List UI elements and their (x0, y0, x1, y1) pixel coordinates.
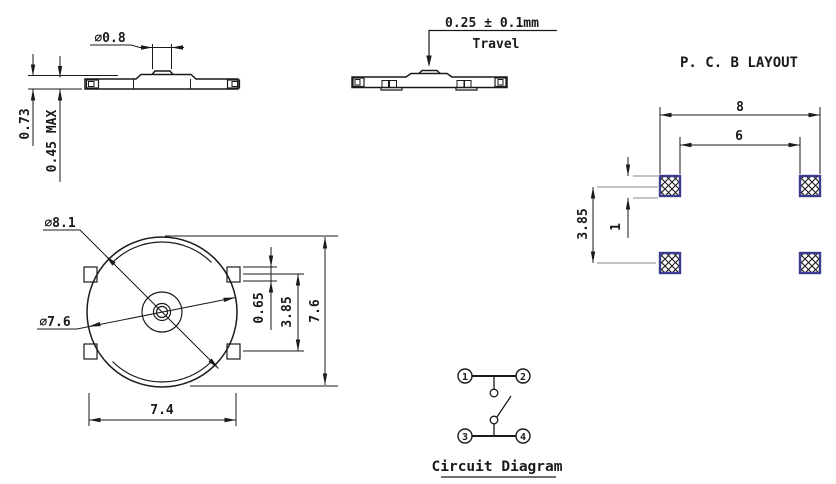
pad-height-label: 1 (609, 223, 624, 231)
upper-contact (490, 389, 498, 397)
notch-right-1 (457, 81, 464, 88)
dim-flange-dia (43, 230, 219, 369)
notch-left-2 (390, 81, 397, 88)
height-label: 0.73 (18, 108, 33, 139)
dim-pad-height (626, 157, 630, 238)
body-dia-label: ∅7.6 (39, 315, 70, 330)
switch-body-profile (85, 75, 238, 90)
travel-value: 0.25 ± 0.1mm (445, 16, 539, 31)
switch-lever (497, 396, 511, 417)
tab-pitch-label: 3.85 (280, 296, 295, 327)
height-max-label: 0.45 MAX (45, 110, 60, 173)
side-view-travel (352, 71, 507, 91)
left-end-tab-inner (89, 82, 95, 87)
notch-left-1 (382, 81, 389, 88)
terminal-3-number: 3 (462, 432, 468, 443)
right-end-tab-b-inner (498, 80, 503, 86)
drawing-sheet: ∅0.8 0.73 0.45 MAX 0.25 ± 0.1mm Travel P… (0, 0, 836, 484)
travel-arrow (426, 56, 431, 68)
left-end-tab-b-inner (355, 80, 360, 86)
dim-stem-diameter (90, 44, 184, 69)
pcb-outer-span-label: 8 (736, 100, 744, 115)
overall-height-label: 7.6 (308, 299, 323, 323)
circuit-diagram-title: Circuit Diagram (432, 459, 563, 475)
tab-height-label: 0.65 (252, 292, 267, 323)
terminal-4-number: 4 (520, 432, 526, 443)
pad-top-left (660, 176, 680, 196)
right-end-tab-inner (232, 82, 238, 87)
switch-body-profile-b (352, 74, 507, 88)
body-seams (134, 79, 191, 89)
dim-height-073 (28, 54, 118, 146)
pad-top-right (800, 176, 820, 196)
side-view-front (85, 71, 240, 89)
travel-label: Travel (473, 37, 520, 52)
flange-dia-label: ∅8.1 (44, 216, 75, 231)
lower-contact (490, 416, 498, 424)
pcb-inner-span-label: 6 (735, 129, 743, 144)
tact-switch-drawing: ∅0.8 0.73 0.45 MAX 0.25 ± 0.1mm Travel P… (0, 0, 836, 484)
pad-bottom-right (800, 253, 820, 273)
pcb-pads (660, 176, 820, 273)
overall-width-label: 7.4 (150, 403, 174, 418)
pad-bottom-left (660, 253, 680, 273)
notch-right-2 (465, 81, 472, 88)
dim-row-pitch (591, 187, 595, 263)
terminal-1-number: 1 (462, 372, 468, 383)
terminal-2-number: 2 (520, 372, 526, 383)
pcb-layout-title: P. C. B LAYOUT (680, 55, 798, 71)
stem-dia-label: ∅0.8 (94, 31, 125, 46)
row-pitch-label: 3.85 (576, 208, 591, 239)
